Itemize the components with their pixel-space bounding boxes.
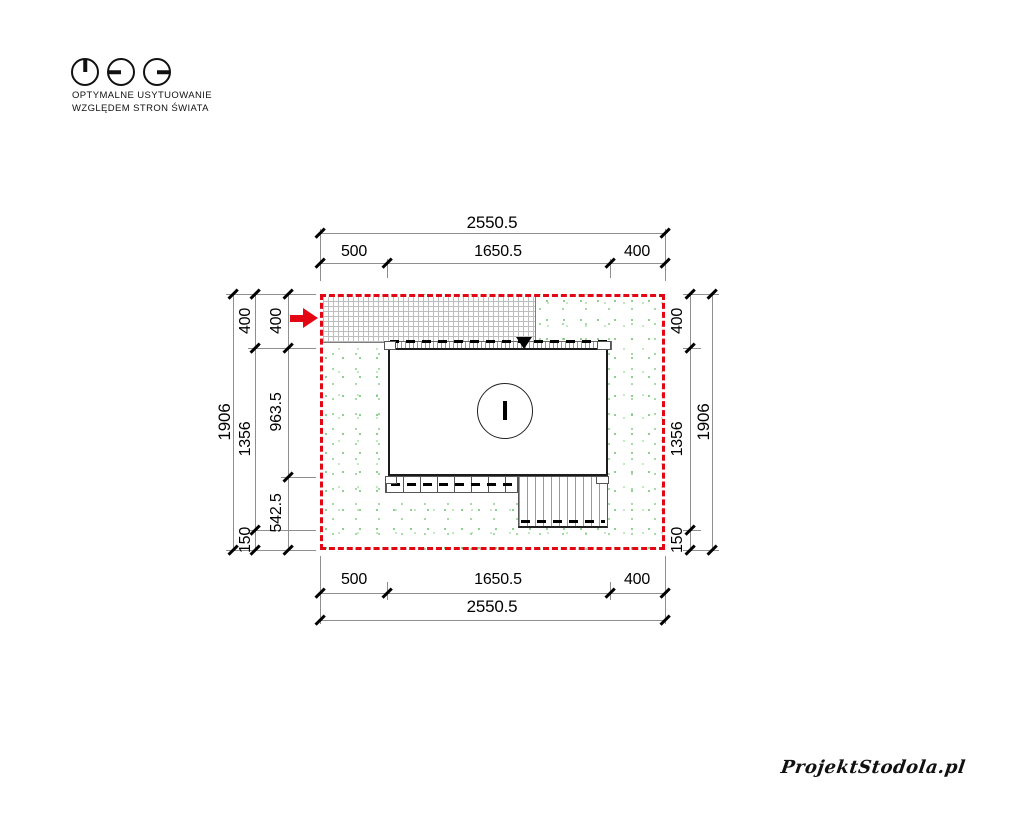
- dial-hand-up-icon: [71, 58, 99, 86]
- building-number-badge: I: [477, 383, 533, 439]
- legend-caption-line1: OPTYMALNE USYTUOWANIE: [72, 89, 212, 102]
- dim-label-left-outer3: 150: [237, 527, 255, 553]
- dimension-line: [320, 263, 665, 264]
- dim-label-top-seg1: 500: [341, 243, 367, 261]
- legend-caption: OPTYMALNE USYTUOWANIE WZGLĘDEM STRON ŚWI…: [72, 89, 212, 115]
- paved-driveway-area: [323, 297, 536, 343]
- extension-line: [248, 348, 316, 349]
- dim-label-right-total: 1906: [694, 403, 714, 440]
- dimension-line: [320, 620, 665, 621]
- overhang-dashed-line-bottom: [391, 483, 513, 486]
- corner-notch: [597, 341, 611, 350]
- dim-label-top-seg2: 1650.5: [474, 243, 522, 261]
- dimension-line: [320, 233, 665, 234]
- corner-notch: [596, 476, 609, 484]
- entrance-arrow-icon: [516, 337, 532, 349]
- dimension-line: [690, 294, 691, 550]
- dim-label-bottom-total: 2550.5: [467, 597, 518, 617]
- dim-label-bottom-seg2: 1650.5: [474, 571, 522, 589]
- dim-label-left-outer2: 1356: [237, 422, 255, 457]
- dim-label-left-inner3: 542.5: [268, 493, 286, 532]
- corner-notch: [384, 341, 396, 350]
- sun-orientation-legend: [71, 58, 171, 86]
- legend-caption-line2: WZGLĘDEM STRON ŚWIATA: [72, 102, 212, 115]
- dim-label-right-seg1: 400: [669, 308, 687, 334]
- dim-label-right-seg3: 150: [669, 527, 687, 553]
- dim-label-top-seg3: 400: [624, 243, 650, 261]
- dimension-line: [255, 294, 256, 550]
- dimension-line: [320, 593, 665, 594]
- dimension-line: [288, 294, 289, 550]
- brand-logo: ProjektStodola.pl: [779, 757, 966, 778]
- building-number-label: I: [501, 395, 509, 427]
- corner-notch: [385, 476, 397, 484]
- dim-label-left-total: 1906: [215, 403, 235, 440]
- dim-label-left-inner1: 400: [268, 308, 286, 334]
- extension-line: [320, 229, 321, 281]
- dial-hand-right-icon: [143, 58, 171, 86]
- site-plan-page: OPTYMALNE USYTUOWANIE WZGLĘDEM STRON ŚWI…: [0, 0, 1024, 822]
- dim-label-top-total: 2550.5: [467, 213, 518, 233]
- plot-entry-arrow-icon: [290, 308, 319, 329]
- dial-hand-left-icon: [107, 58, 135, 86]
- dim-label-left-inner2: 963.5: [268, 392, 286, 431]
- extension-line: [226, 294, 316, 295]
- dim-label-left-outer1: 400: [237, 308, 255, 334]
- extension-line: [665, 229, 666, 281]
- terrace-dashed-line: [521, 520, 605, 523]
- roof-overhang-dashed-line: [390, 340, 608, 343]
- dim-label-right-seg2: 1356: [669, 422, 687, 457]
- dim-label-bottom-seg1: 500: [341, 571, 367, 589]
- dim-label-bottom-seg3: 400: [624, 571, 650, 589]
